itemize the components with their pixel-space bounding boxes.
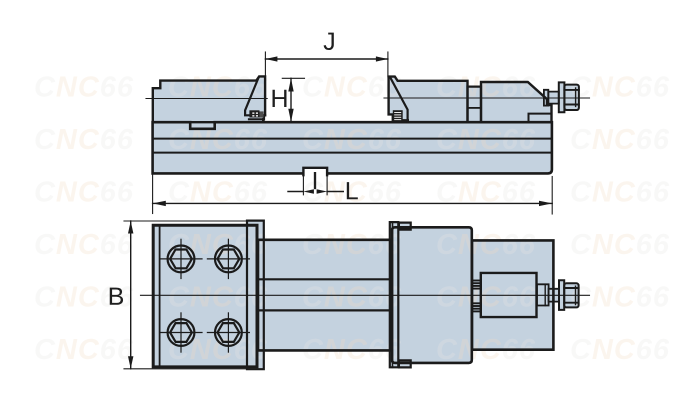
svg-text:CNC66: CNC66 — [570, 177, 670, 209]
svg-text:CNC66: CNC66 — [34, 282, 134, 314]
svg-text:CNC66: CNC66 — [302, 229, 402, 261]
svg-text:CNC66: CNC66 — [436, 229, 536, 261]
svg-text:CNC66: CNC66 — [168, 334, 268, 366]
svg-text:CNC66: CNC66 — [34, 229, 134, 261]
svg-text:CNC66: CNC66 — [570, 124, 670, 156]
svg-text:CNC66: CNC66 — [570, 72, 670, 104]
svg-text:CNC66: CNC66 — [436, 282, 536, 314]
svg-text:CNC66: CNC66 — [168, 124, 268, 156]
svg-text:CNC66: CNC66 — [34, 177, 134, 209]
svg-text:CNC66: CNC66 — [34, 124, 134, 156]
svg-text:CNC66: CNC66 — [34, 334, 134, 366]
svg-text:CNC66: CNC66 — [302, 282, 402, 314]
svg-text:CNC66: CNC66 — [570, 334, 670, 366]
svg-text:CNC66: CNC66 — [302, 72, 402, 104]
svg-text:CNC66: CNC66 — [302, 124, 402, 156]
svg-text:CNC66: CNC66 — [436, 72, 536, 104]
svg-text:CNC66: CNC66 — [436, 124, 536, 156]
svg-text:CNC66: CNC66 — [34, 72, 134, 104]
svg-text:CNC66: CNC66 — [570, 282, 670, 314]
svg-text:CNC66: CNC66 — [168, 282, 268, 314]
svg-text:CNC66: CNC66 — [570, 229, 670, 261]
